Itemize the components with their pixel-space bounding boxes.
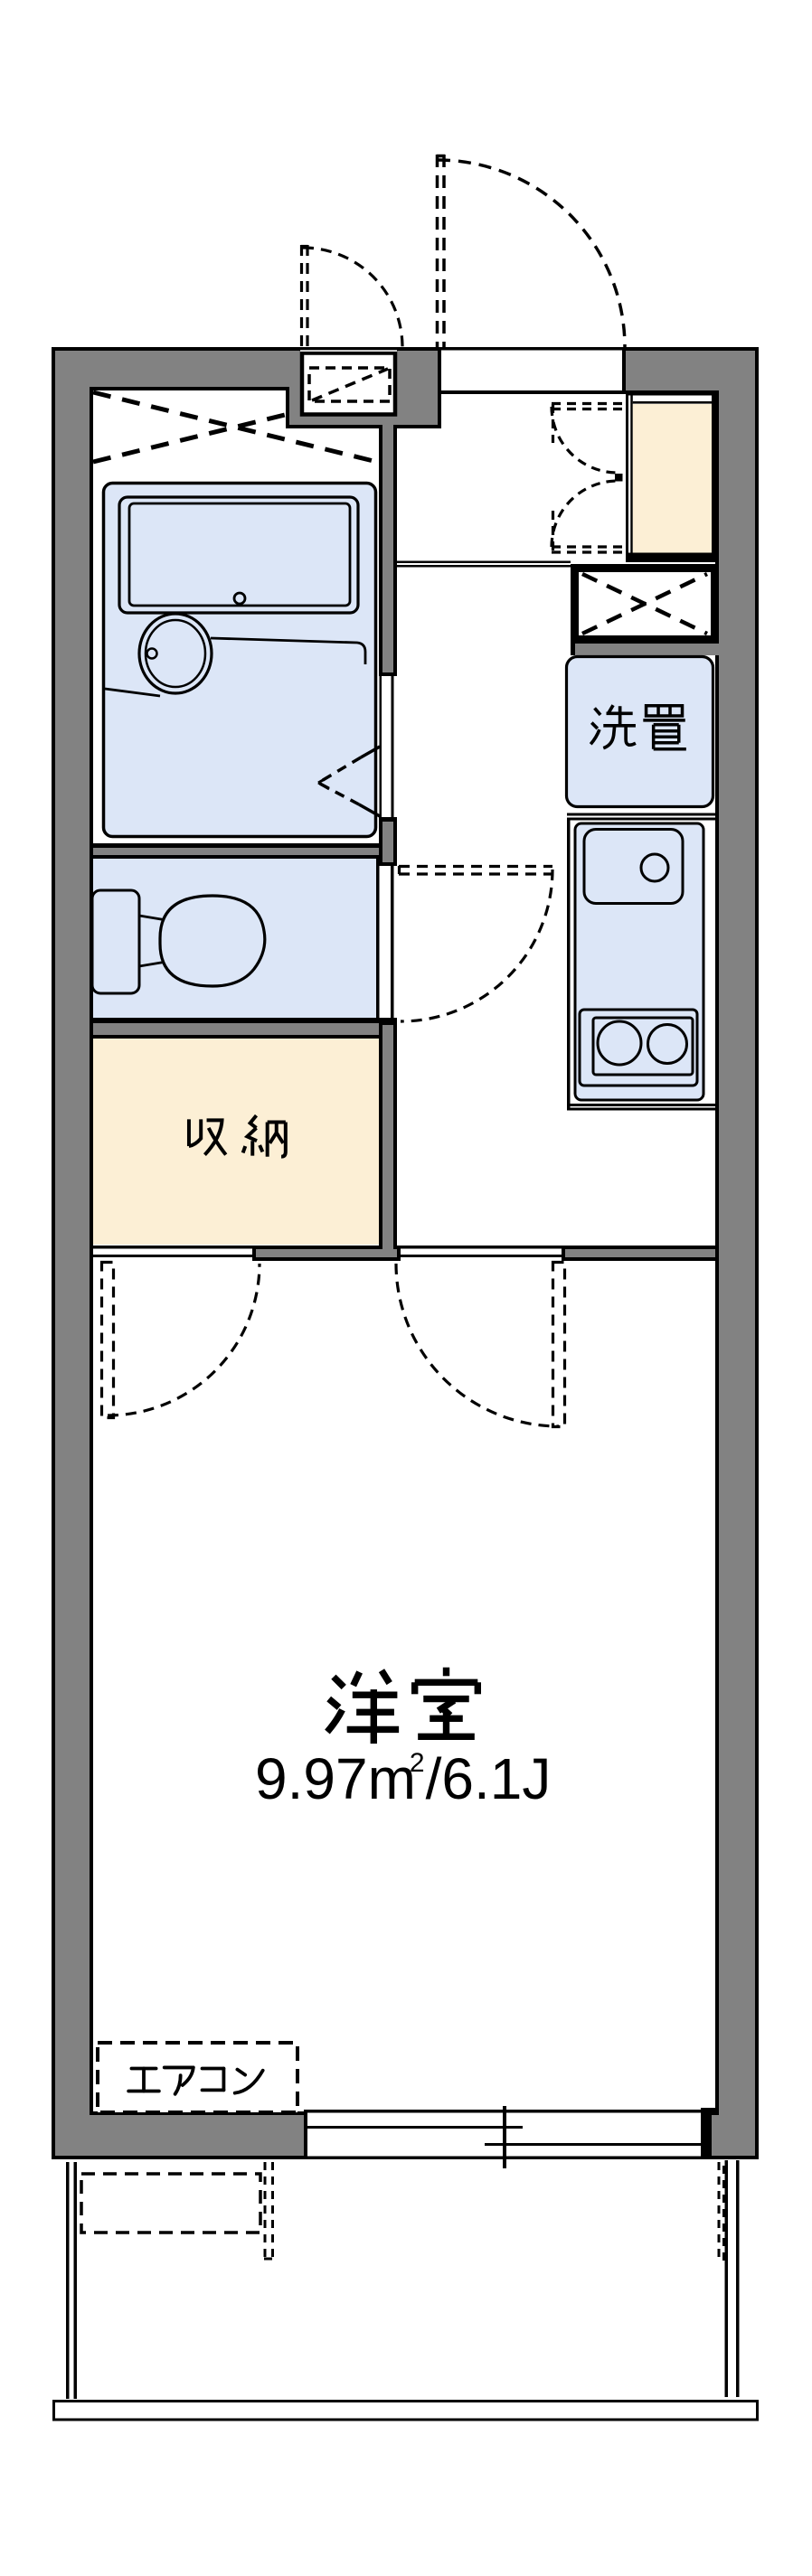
svg-text:9.97m2/6.1J: 9.97m2/6.1J [255,1746,551,1811]
